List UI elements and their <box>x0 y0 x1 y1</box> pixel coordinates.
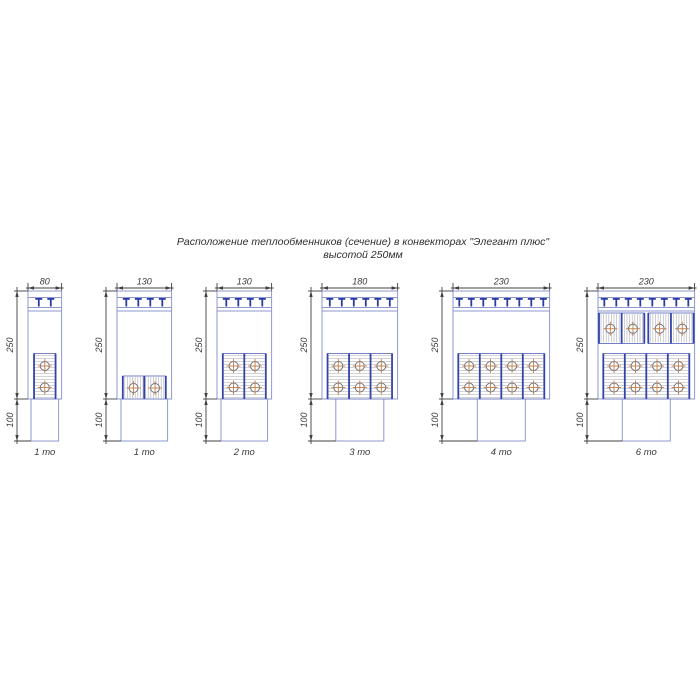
convector-caption: 3 то <box>349 447 370 458</box>
grille-tooth-stem <box>329 298 331 307</box>
tube-section <box>653 322 667 336</box>
dimension-height-label: 250 <box>430 337 440 353</box>
dimension-duct-label: 100 <box>94 412 104 427</box>
dimension-arrow <box>266 286 272 289</box>
heat-exchanger-block <box>648 313 693 344</box>
grille-tooth-stem <box>261 298 263 307</box>
duct-outline <box>622 399 670 441</box>
grille-tooth-stem <box>38 298 40 307</box>
dimension-arrow <box>309 393 312 399</box>
dimension-width: 80 <box>26 277 64 291</box>
grille-teeth <box>326 298 393 307</box>
technical-drawing-canvas: Расположение теплообменников (сечение) в… <box>0 0 700 700</box>
dimension-arrow <box>322 286 328 289</box>
convector-diagram-2: 1302501001 то <box>94 277 174 459</box>
dimension-arrow <box>15 435 18 441</box>
dimension-arrow <box>204 291 207 297</box>
dimension-arrow <box>544 286 550 289</box>
dimension-arrow <box>204 435 207 441</box>
dimension-arrow <box>689 286 695 289</box>
duct-outline <box>121 399 168 441</box>
dimension-width-label: 230 <box>638 277 654 287</box>
grille-tooth-stem <box>341 298 343 307</box>
dimension-arrow <box>104 291 107 297</box>
dimension-arrow <box>309 435 312 441</box>
dimension-width: 230 <box>596 277 697 291</box>
dimension-arrow <box>392 286 398 289</box>
dimension-arrow <box>440 291 443 297</box>
dimension-arrow <box>15 291 18 297</box>
grille-tooth-stem <box>687 298 689 307</box>
grille-teeth <box>223 298 266 307</box>
convector-caption: 6 то <box>636 447 657 458</box>
dimension-height-label: 250 <box>94 337 104 353</box>
convector-diagram-1: 802501001 то <box>5 277 64 459</box>
grille-tooth-stem <box>249 298 251 307</box>
heat-exchanger-block <box>458 354 544 400</box>
convector-sections-drawing: 802501001 то1302501001 то1302501002 то18… <box>0 0 700 700</box>
dimension-width-label: 130 <box>237 277 252 287</box>
dimension-arrow <box>104 399 107 405</box>
grille-tooth-stem <box>603 298 605 307</box>
dimension-arrow <box>204 393 207 399</box>
grille-tooth-stem <box>125 298 127 307</box>
heat-exchanger-block <box>123 376 166 399</box>
dimension-width: 230 <box>451 277 552 291</box>
grille-tooth-stem <box>161 298 163 307</box>
dimension-duct-label: 100 <box>575 412 585 427</box>
dimension-width-label: 130 <box>137 277 152 287</box>
dimension-width-label: 230 <box>493 277 509 287</box>
dimension-height-label: 250 <box>5 337 15 353</box>
grille-tooth-stem <box>506 298 508 307</box>
dimension-heights: 250100 <box>5 287 31 444</box>
dimension-arrow <box>217 286 223 289</box>
grille-tooth-stem <box>470 298 472 307</box>
dimension-arrow <box>585 393 588 399</box>
duct-outline <box>31 399 59 441</box>
tube-section <box>127 381 141 395</box>
dimension-arrow <box>15 393 18 399</box>
convector-diagram-3: 1302501002 то <box>194 277 274 459</box>
dimension-arrow <box>585 435 588 441</box>
convector-diagram-4: 1802501003 то <box>299 277 400 459</box>
grille-tooth-stem <box>530 298 532 307</box>
dimension-arrow <box>598 286 604 289</box>
dimension-arrow <box>585 291 588 297</box>
dimension-arrow <box>28 286 34 289</box>
dimension-arrow <box>440 399 443 405</box>
dimension-height-label: 250 <box>194 337 204 353</box>
dimension-arrow <box>15 399 18 405</box>
dimension-duct-label: 100 <box>299 412 309 427</box>
grille-tooth-stem <box>482 298 484 307</box>
grille-tooth-stem <box>639 298 641 307</box>
grille-tooth-stem <box>518 298 520 307</box>
grille-tooth-stem <box>149 298 151 307</box>
dimension-duct-label: 100 <box>430 412 440 427</box>
convector-caption: 1 то <box>134 447 155 458</box>
dimension-arrow <box>104 435 107 441</box>
grille-tooth-stem <box>494 298 496 307</box>
dimension-height-label: 250 <box>299 337 309 353</box>
dimension-width-label: 80 <box>40 277 50 287</box>
grille-tooth-stem <box>50 298 52 307</box>
convector-diagram-6: 2302501006 то <box>575 277 697 459</box>
dimension-arrow <box>166 286 172 289</box>
dimension-arrow <box>585 399 588 405</box>
grille-tooth-stem <box>389 298 391 307</box>
grille-tooth-stem <box>627 298 629 307</box>
dimension-arrow <box>309 291 312 297</box>
dimension-width: 130 <box>115 277 174 291</box>
duct-outline <box>336 399 384 441</box>
tube-section <box>675 322 689 336</box>
heat-exchanger-block <box>603 354 689 400</box>
dimension-arrow <box>56 286 62 289</box>
heat-exchanger-block <box>328 354 393 400</box>
heat-exchanger-block <box>599 313 644 344</box>
convector-caption: 2 то <box>233 447 255 458</box>
dimension-arrow <box>453 286 459 289</box>
tube-section <box>148 381 162 395</box>
dimension-width: 130 <box>215 277 274 291</box>
dimension-height-label: 250 <box>575 337 585 353</box>
dimension-arrow <box>117 286 123 289</box>
dimension-width-label: 180 <box>352 277 367 287</box>
grille-teeth <box>456 298 547 307</box>
grille-tooth-stem <box>225 298 227 307</box>
dimension-arrow <box>440 393 443 399</box>
grille-tooth-stem <box>675 298 677 307</box>
grille-teeth <box>35 298 54 307</box>
dimension-arrow <box>309 399 312 405</box>
grille-tooth-stem <box>365 298 367 307</box>
dimension-arrow <box>204 399 207 405</box>
convector-caption: 1 то <box>34 447 55 458</box>
dimension-duct-label: 100 <box>194 412 204 427</box>
grille-tooth-stem <box>663 298 665 307</box>
duct-outline <box>477 399 525 441</box>
grille-tooth-stem <box>137 298 139 307</box>
grille-tooth-stem <box>377 298 379 307</box>
dimension-width: 180 <box>320 277 400 291</box>
grille-tooth-stem <box>542 298 544 307</box>
duct-outline <box>221 399 268 441</box>
grille-tooth-stem <box>458 298 460 307</box>
heat-exchanger-block <box>223 354 266 400</box>
dimension-arrow <box>104 393 107 399</box>
heat-exchanger-block <box>34 354 56 400</box>
grille-tooth-stem <box>353 298 355 307</box>
grille-tooth-stem <box>651 298 653 307</box>
grille-tooth-stem <box>615 298 617 307</box>
grille-teeth <box>601 298 692 307</box>
convector-caption: 4 то <box>491 447 512 458</box>
tube-section <box>603 322 617 336</box>
dimension-duct-label: 100 <box>5 412 15 427</box>
tube-section <box>626 322 640 336</box>
grille-tooth-stem <box>237 298 239 307</box>
dimension-arrow <box>440 435 443 441</box>
convector-diagram-5: 2302501004 то <box>430 277 552 459</box>
grille-teeth <box>123 298 166 307</box>
